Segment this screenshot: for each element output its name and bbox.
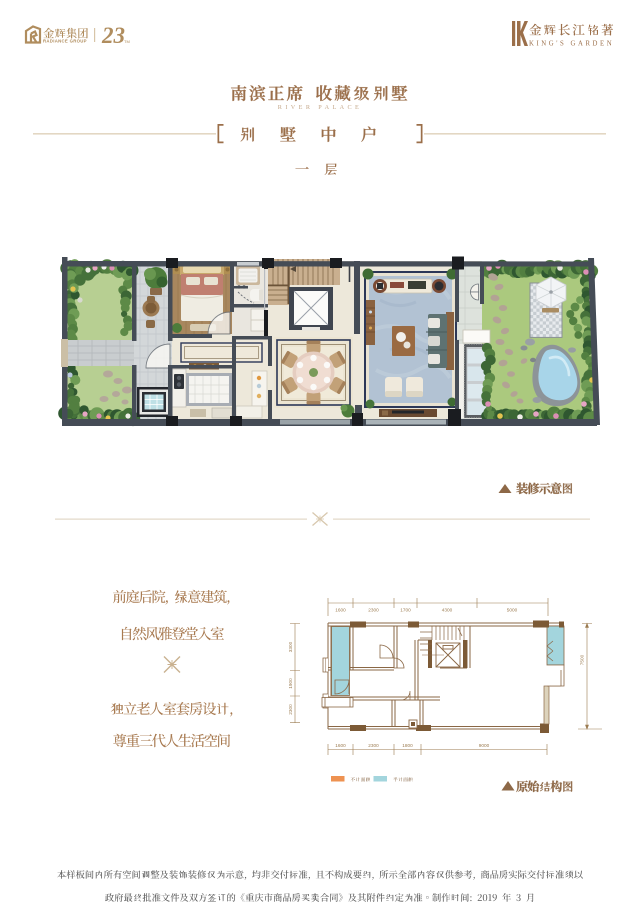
svg-text:RIVER PALACE: RIVER PALACE [278,104,362,111]
svg-text:7500: 7500 [580,654,585,665]
svg-text:23: 23 [101,23,125,48]
svg-text:5000: 5000 [507,608,518,613]
svg-text:4300: 4300 [442,608,453,613]
svg-text:2300: 2300 [368,743,379,748]
svg-text:1700: 1700 [400,608,411,613]
svg-text:9000: 9000 [479,743,490,748]
svg-text:1900: 1900 [288,678,293,689]
svg-text:TM: TM [124,39,130,44]
svg-text:KING'S GARDEN: KING'S GARDEN [529,40,614,47]
svg-text:1800: 1800 [402,743,413,748]
svg-text:2300: 2300 [368,608,379,613]
svg-text:2300: 2300 [288,704,293,715]
svg-text:1600: 1600 [335,608,346,613]
svg-text:RADIANCE GROUP: RADIANCE GROUP [43,38,87,43]
svg-text:3300: 3300 [288,641,293,652]
svg-text:1600: 1600 [335,743,346,748]
